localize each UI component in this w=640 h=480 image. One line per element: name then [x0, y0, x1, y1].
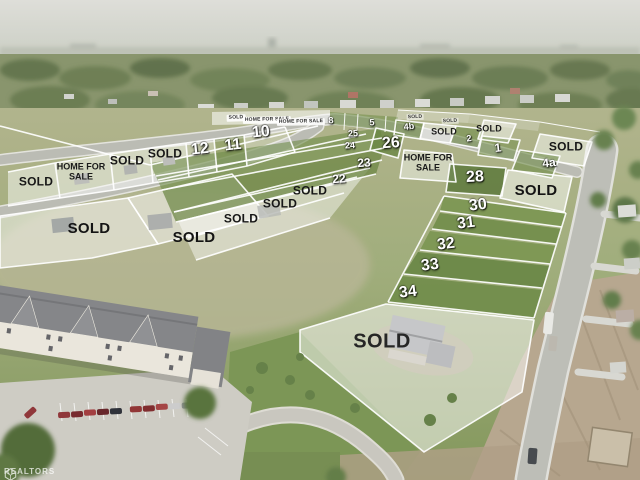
lot-32: 32	[436, 236, 456, 255]
home-for-sale-right: HOME FOR SALE	[404, 153, 453, 174]
lot-30: 30	[468, 197, 488, 216]
sold-lot-c: SOLD	[549, 141, 583, 154]
sold-lot-i: SOLD	[263, 198, 297, 211]
lot-25: 25	[348, 129, 358, 139]
sold-lot-f: SOLD	[110, 155, 144, 168]
lot-23: 23	[357, 156, 371, 169]
lot-4b: 4b	[403, 122, 414, 132]
sold-lot-l: SOLD	[173, 230, 216, 246]
aerial-lot-map: SOLDHOME FOR SALEHOME FOR SALE85SOLD4bSO…	[0, 0, 640, 480]
lot-10: 10	[251, 124, 270, 143]
sold-lot-g: SOLD	[19, 176, 53, 189]
lot-24: 24	[345, 141, 355, 151]
sold-lot-h: SOLD	[293, 185, 327, 198]
lot-1: 1	[494, 141, 502, 154]
lot-5: 5	[369, 118, 375, 128]
lot-33: 33	[420, 257, 440, 276]
banner-sold-3: SOLD	[442, 118, 459, 125]
lot-11: 11	[224, 137, 243, 155]
banner-sold-2: SOLD	[407, 114, 424, 121]
lot-34: 34	[398, 284, 418, 303]
banner-home-for-sale-2: HOME FOR SALE	[277, 118, 325, 126]
sold-lot-j: SOLD	[224, 213, 258, 226]
sold-lot-b: SOLD	[476, 124, 502, 133]
lot-8: 8	[328, 116, 334, 126]
banner-home-for-sale-1: HOME FOR SALE	[243, 116, 291, 124]
home-for-sale-left: HOME FOR SALE	[57, 162, 106, 183]
realtor-watermark: REALTORS	[4, 468, 55, 476]
sold-lot-e: SOLD	[148, 148, 182, 161]
lot-31: 31	[456, 215, 476, 234]
sold-lot-k: SOLD	[68, 221, 111, 237]
lot-4a: 4a	[542, 156, 557, 170]
sold-lot-d: SOLD	[515, 183, 558, 199]
lot-2: 2	[466, 134, 472, 144]
cube-logo-icon	[4, 468, 17, 480]
lot-26: 26	[382, 135, 401, 153]
banner-sold-1: SOLD	[227, 114, 246, 122]
lot-12: 12	[190, 141, 209, 160]
lot-22: 22	[332, 172, 346, 185]
label-layer: SOLDHOME FOR SALEHOME FOR SALE85SOLD4bSO…	[0, 0, 640, 480]
sold-lot-m: SOLD	[353, 332, 411, 353]
sold-lot-a: SOLD	[431, 127, 457, 136]
lot-28: 28	[466, 169, 485, 187]
